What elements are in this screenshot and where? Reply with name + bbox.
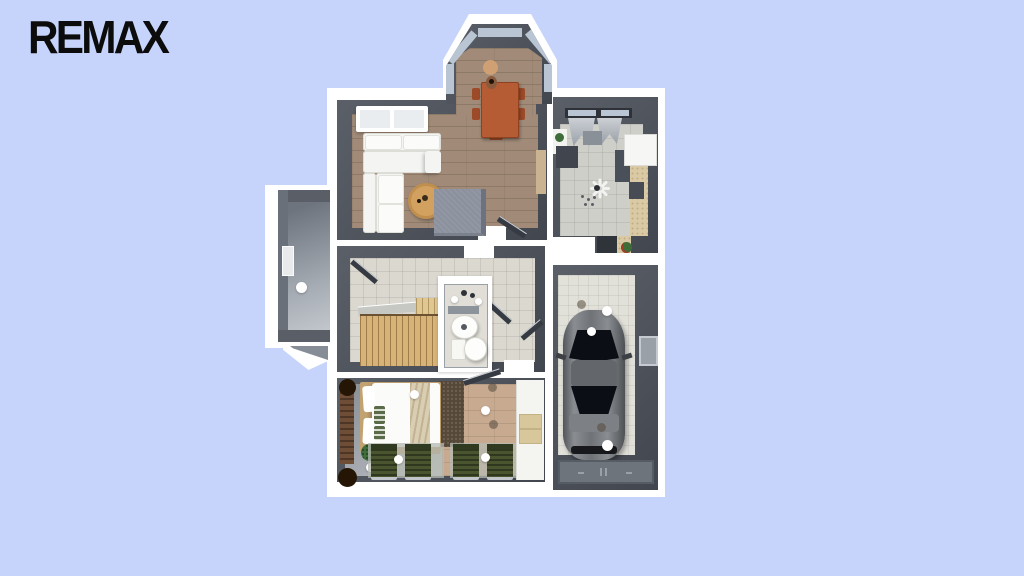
ceiling-fan [588,179,606,197]
staircase [360,314,442,366]
hallway-door-gap-top [464,246,494,258]
kitchen-counter-right [630,166,648,236]
sofa-cushion [378,175,404,204]
shadow-dot [597,423,606,432]
door-mark [600,468,602,476]
chair-dots [581,195,584,198]
toilet-bowl [464,337,487,361]
ceiling-light-dot [475,298,482,305]
window-pane [601,110,629,116]
table-decor [417,199,421,203]
corner-sofa-chaise-seat [376,173,404,233]
pillow-green-striped [374,426,385,440]
car-trunk [569,414,619,432]
ceiling-light-dot [587,327,596,336]
window-pane [394,110,424,128]
kitchen-appliance [597,236,617,253]
chair-dots [587,198,590,201]
bay-window-left-pane [446,64,454,94]
ceiling-light-dot [481,453,490,462]
plant [555,133,564,142]
bathroom-shelf [448,306,479,314]
sofa-cushion [378,204,404,233]
plant [621,242,632,253]
entry-wall-bottom [278,330,330,342]
room-entry [278,190,330,342]
chair-dots [593,196,596,199]
dining-table [481,82,519,138]
sun-lounger [371,444,397,480]
sun-lounger [453,444,479,480]
vase [483,60,498,75]
room-bathroom [438,276,492,372]
ceiling-light-dot [394,455,403,464]
corner-sofa-chaise-back [363,173,376,233]
bedside-runner [340,392,354,464]
chair-dots [591,203,594,206]
window-pane [568,110,596,116]
hallway-door-gap-bottom [504,360,534,372]
bay-window-right-pane [544,64,552,92]
ceiling-light-dot [602,306,612,316]
sofa-cushion [403,135,440,150]
ceiling-light-dot [451,296,458,303]
door-mark [626,472,632,474]
kitchen-sink-unit [629,182,644,199]
ceiling-light-dot [481,406,490,415]
shadow-dot [489,420,498,429]
potted-plant-dark [338,468,357,487]
entry-window [282,246,294,276]
sun-lounger [487,444,513,480]
pillow-green-striped [374,406,385,424]
chair-dots [584,203,587,206]
floor-plan-scene: REMAX [0,0,1024,576]
wash-basin [451,315,478,339]
car-roof [571,360,617,388]
bath-accessory [461,290,467,296]
kitchen-bench [583,131,602,145]
wall-cabinet [536,150,546,194]
bath-accessory [470,293,475,298]
garage-wall-window [639,336,658,366]
kitchen-cabinet-white [624,134,657,166]
corner-sofa-back [363,133,441,151]
kitchen-window [565,108,632,118]
window-pane [360,110,390,128]
vase-opening [489,79,494,84]
room-bedroom [337,378,545,482]
dining-chair [472,88,480,100]
door-mark [578,472,584,474]
room-kitchen [553,97,658,253]
living-window [356,106,428,132]
gray-ottoman-rug [434,189,486,236]
vase-jug [486,76,497,89]
sun-lounger [405,444,431,480]
fan-blade [599,191,602,199]
ceiling-light-dot [602,440,613,451]
fan-hub [594,185,600,191]
wardrobe-box [519,414,542,429]
room-garage [553,265,658,490]
ceiling-light-dot [296,282,307,293]
kitchen-white-notch [553,237,595,253]
sofa-cushion [365,135,402,150]
kitchen-counter-dark [556,146,578,168]
basin-drain [461,324,467,330]
garage-door [558,460,654,484]
table-decor [422,195,428,201]
shag-rug [438,381,464,447]
dining-chair [472,108,480,120]
corner-sofa-corner [425,151,441,173]
wardrobe-box [519,429,542,444]
remax-logo: REMAX [28,14,167,60]
bay-window-top [478,28,522,37]
shadow-dot [488,383,497,392]
door-mark [605,468,607,476]
shadow-dot [577,300,586,309]
potted-plant-dark [339,379,356,396]
ceiling-light-dot [410,390,419,399]
